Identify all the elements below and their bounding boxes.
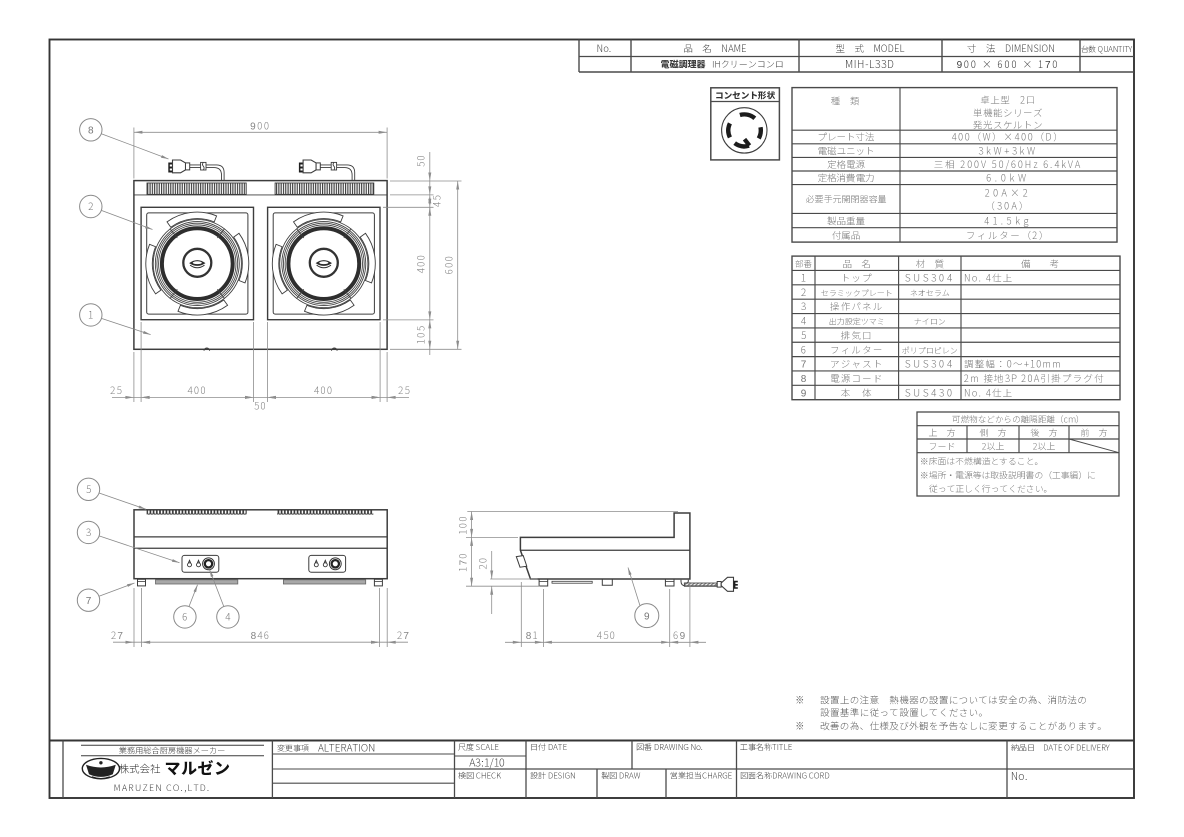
svg-text:前 方: 前 方 — [1080, 426, 1107, 439]
svg-text:20A×2: 20A×2 — [984, 186, 1031, 200]
svg-text:ナイロン: ナイロン — [914, 317, 946, 328]
svg-text:400: 400 — [413, 254, 428, 274]
svg-text:上 方: 上 方 — [928, 426, 955, 439]
svg-text:調整幅：0～+10mm: 調整幅：0～+10mm — [964, 357, 1062, 371]
svg-text:9: 9 — [801, 384, 807, 399]
svg-text:検図 CHECK: 検図 CHECK — [458, 771, 502, 782]
svg-text:フィルター: フィルター — [830, 342, 884, 356]
svg-text:コンセント形状: コンセント形状 — [715, 89, 776, 101]
svg-text:変更事項: 変更事項 — [277, 743, 309, 754]
svg-text:ポリプロピレン: ポリプロピレン — [902, 345, 958, 356]
svg-text:MARUZEN CO.,LTD.: MARUZEN CO.,LTD. — [114, 781, 211, 794]
svg-text:41.5kg: 41.5kg — [984, 214, 1032, 228]
svg-text:2: 2 — [88, 198, 94, 213]
svg-text:No. 4仕上: No. 4仕上 — [964, 385, 1013, 399]
svg-text:2m 接地3P 20A引掛プラグ付: 2m 接地3P 20A引掛プラグ付 — [963, 371, 1105, 385]
svg-text:トップ: トップ — [841, 270, 873, 284]
svg-text:2以上: 2以上 — [1033, 440, 1056, 453]
svg-text:※: ※ — [795, 719, 805, 733]
svg-text:No. 4仕上: No. 4仕上 — [964, 270, 1013, 284]
svg-text:※: ※ — [795, 693, 805, 707]
svg-text:製図 DRAW: 製図 DRAW — [601, 771, 641, 782]
svg-text:50: 50 — [254, 398, 267, 413]
svg-text:製品重量: 製品重量 — [827, 214, 866, 228]
svg-text:A3:1/10: A3:1/10 — [469, 756, 505, 771]
svg-text:型 式 MODEL: 型 式 MODEL — [835, 41, 904, 55]
svg-text:400（W）×400（D）: 400（W）×400（D） — [951, 130, 1064, 144]
svg-text:7: 7 — [801, 356, 807, 371]
svg-text:寸 法 DIMENSION: 寸 法 DIMENSION — [967, 41, 1055, 55]
svg-text:出力設定ツマミ: 出力設定ツマミ — [829, 317, 885, 328]
svg-text:5: 5 — [801, 327, 806, 342]
svg-text:600: 600 — [440, 255, 455, 275]
svg-text:400: 400 — [188, 382, 208, 397]
svg-text:450: 450 — [597, 627, 617, 642]
svg-text:定格電源: 定格電源 — [827, 157, 866, 171]
svg-text:納品日 DATE OF DELIVERY: 納品日 DATE OF DELIVERY — [1010, 743, 1110, 754]
svg-text:株式会社: 株式会社 — [119, 762, 161, 777]
svg-text:SUS430: SUS430 — [905, 384, 955, 399]
svg-text:排気口: 排気口 — [840, 328, 873, 342]
svg-text:4: 4 — [801, 313, 806, 328]
svg-text:105: 105 — [413, 325, 428, 345]
svg-text:3kW+3kW: 3kW+3kW — [977, 143, 1037, 157]
svg-text:20: 20 — [474, 556, 489, 569]
svg-text:4: 4 — [225, 609, 230, 624]
svg-text:マルゼン: マルゼン — [164, 755, 230, 779]
svg-text:※床面は不燃構造とすること。: ※床面は不燃構造とすること。 — [920, 455, 1043, 468]
svg-text:81: 81 — [526, 627, 539, 642]
svg-text:従って正しく行ってください。: 従って正しく行ってください。 — [928, 482, 1052, 495]
svg-text:900 × 600 × 170: 900 × 600 × 170 — [957, 56, 1060, 71]
svg-text:本 体: 本 体 — [841, 385, 873, 399]
svg-text:部番: 部番 — [795, 258, 813, 270]
svg-text:69: 69 — [673, 627, 686, 642]
svg-text:2: 2 — [801, 284, 807, 299]
svg-text:三相 200V 50/60Hz 6.4kVA: 三相 200V 50/60Hz 6.4kVA — [934, 157, 1082, 171]
svg-text:900: 900 — [250, 117, 271, 132]
svg-text:SUS304: SUS304 — [905, 269, 955, 284]
svg-text:400: 400 — [314, 382, 334, 397]
svg-text:台数 QUANTITY: 台数 QUANTITY — [1081, 44, 1133, 55]
svg-text:5: 5 — [86, 481, 91, 496]
svg-text:材 質: 材 質 — [916, 256, 945, 270]
svg-text:25: 25 — [398, 382, 411, 397]
svg-text:工事名称TITLE: 工事名称TITLE — [740, 742, 793, 753]
svg-text:170: 170 — [454, 552, 469, 572]
svg-text:尺度 SCALE: 尺度 SCALE — [458, 742, 499, 753]
svg-text:プレート寸法: プレート寸法 — [817, 130, 874, 144]
svg-text:1: 1 — [88, 307, 93, 322]
svg-text:25: 25 — [110, 382, 123, 397]
svg-text:No.: No. — [597, 41, 612, 55]
svg-text:IHクリーンコンロ: IHクリーンコンロ — [712, 58, 784, 71]
svg-text:846: 846 — [251, 627, 271, 642]
svg-text:※場所・電源等は取扱説明書の（工事編）に: ※場所・電源等は取扱説明書の（工事編）に — [920, 469, 1096, 482]
svg-text:MIH-L33D: MIH-L33D — [845, 57, 895, 72]
svg-text:45: 45 — [429, 194, 444, 207]
svg-text:6: 6 — [182, 609, 187, 624]
svg-text:6.0kW: 6.0kW — [986, 171, 1029, 185]
svg-text:1: 1 — [801, 269, 806, 284]
svg-text:後 方: 後 方 — [1029, 426, 1057, 439]
svg-text:備 考: 備 考 — [1021, 256, 1059, 270]
svg-text:8: 8 — [88, 121, 94, 136]
svg-text:3: 3 — [801, 298, 806, 313]
svg-text:アジャスト: アジャスト — [830, 357, 884, 371]
svg-text:可燃物などからの離隔距離（cm）: 可燃物などからの離隔距離（cm） — [952, 414, 1084, 426]
svg-text:営業担当CHARGE: 営業担当CHARGE — [670, 771, 733, 782]
svg-text:6: 6 — [801, 341, 806, 356]
svg-text:No.: No. — [1011, 769, 1027, 784]
svg-text:ALTERATION: ALTERATION — [318, 740, 375, 755]
svg-text:付属品: 付属品 — [832, 228, 861, 242]
svg-text:100: 100 — [454, 515, 469, 535]
svg-text:50: 50 — [413, 154, 428, 167]
svg-text:日付 DATE: 日付 DATE — [530, 742, 567, 753]
svg-text:セラミックプレート: セラミックプレート — [821, 288, 893, 299]
svg-text:設計 DESIGN: 設計 DESIGN — [530, 771, 576, 782]
svg-text:（30A）: （30A） — [985, 199, 1031, 213]
svg-text:7: 7 — [86, 592, 92, 607]
svg-text:電源コード: 電源コード — [830, 371, 884, 385]
svg-text:フィルター（2）: フィルター（2） — [966, 228, 1050, 242]
svg-text:2以上: 2以上 — [982, 440, 1005, 453]
svg-text:9: 9 — [644, 608, 650, 623]
svg-text:操作パネル: 操作パネル — [830, 299, 884, 313]
svg-text:卓上型 2口: 卓上型 2口 — [980, 93, 1036, 107]
svg-text:図番 DRAWING No.: 図番 DRAWING No. — [636, 742, 703, 753]
svg-text:電磁調理器: 電磁調理器 — [660, 58, 706, 71]
svg-text:品 名: 品 名 — [843, 256, 872, 270]
svg-text:27: 27 — [397, 627, 410, 642]
svg-text:8: 8 — [801, 370, 807, 385]
svg-text:側 方: 側 方 — [979, 426, 1006, 439]
svg-text:図面名称DRAWING CORD: 図面名称DRAWING CORD — [740, 771, 830, 782]
svg-text:SUS304: SUS304 — [905, 356, 955, 371]
svg-text:設置基準に従って設置してください。: 設置基準に従って設置してください。 — [820, 705, 988, 719]
svg-text:3: 3 — [86, 524, 91, 539]
svg-text:ネオセラム: ネオセラム — [910, 288, 950, 299]
svg-text:27: 27 — [111, 627, 124, 642]
svg-text:フード: フード — [928, 440, 955, 453]
svg-text:改善の為、仕様及び外観を予告なしに変更することがあります。: 改善の為、仕様及び外観を予告なしに変更することがあります。 — [820, 719, 1107, 733]
svg-text:種 類: 種 類 — [831, 94, 860, 108]
svg-text:品 名 NAME: 品 名 NAME — [683, 41, 747, 55]
svg-text:必要手元開閉器容量: 必要手元開閉器容量 — [805, 193, 886, 206]
svg-text:定格消費電力: 定格消費電力 — [817, 171, 874, 185]
svg-text:電磁ユニット: 電磁ユニット — [817, 143, 874, 157]
